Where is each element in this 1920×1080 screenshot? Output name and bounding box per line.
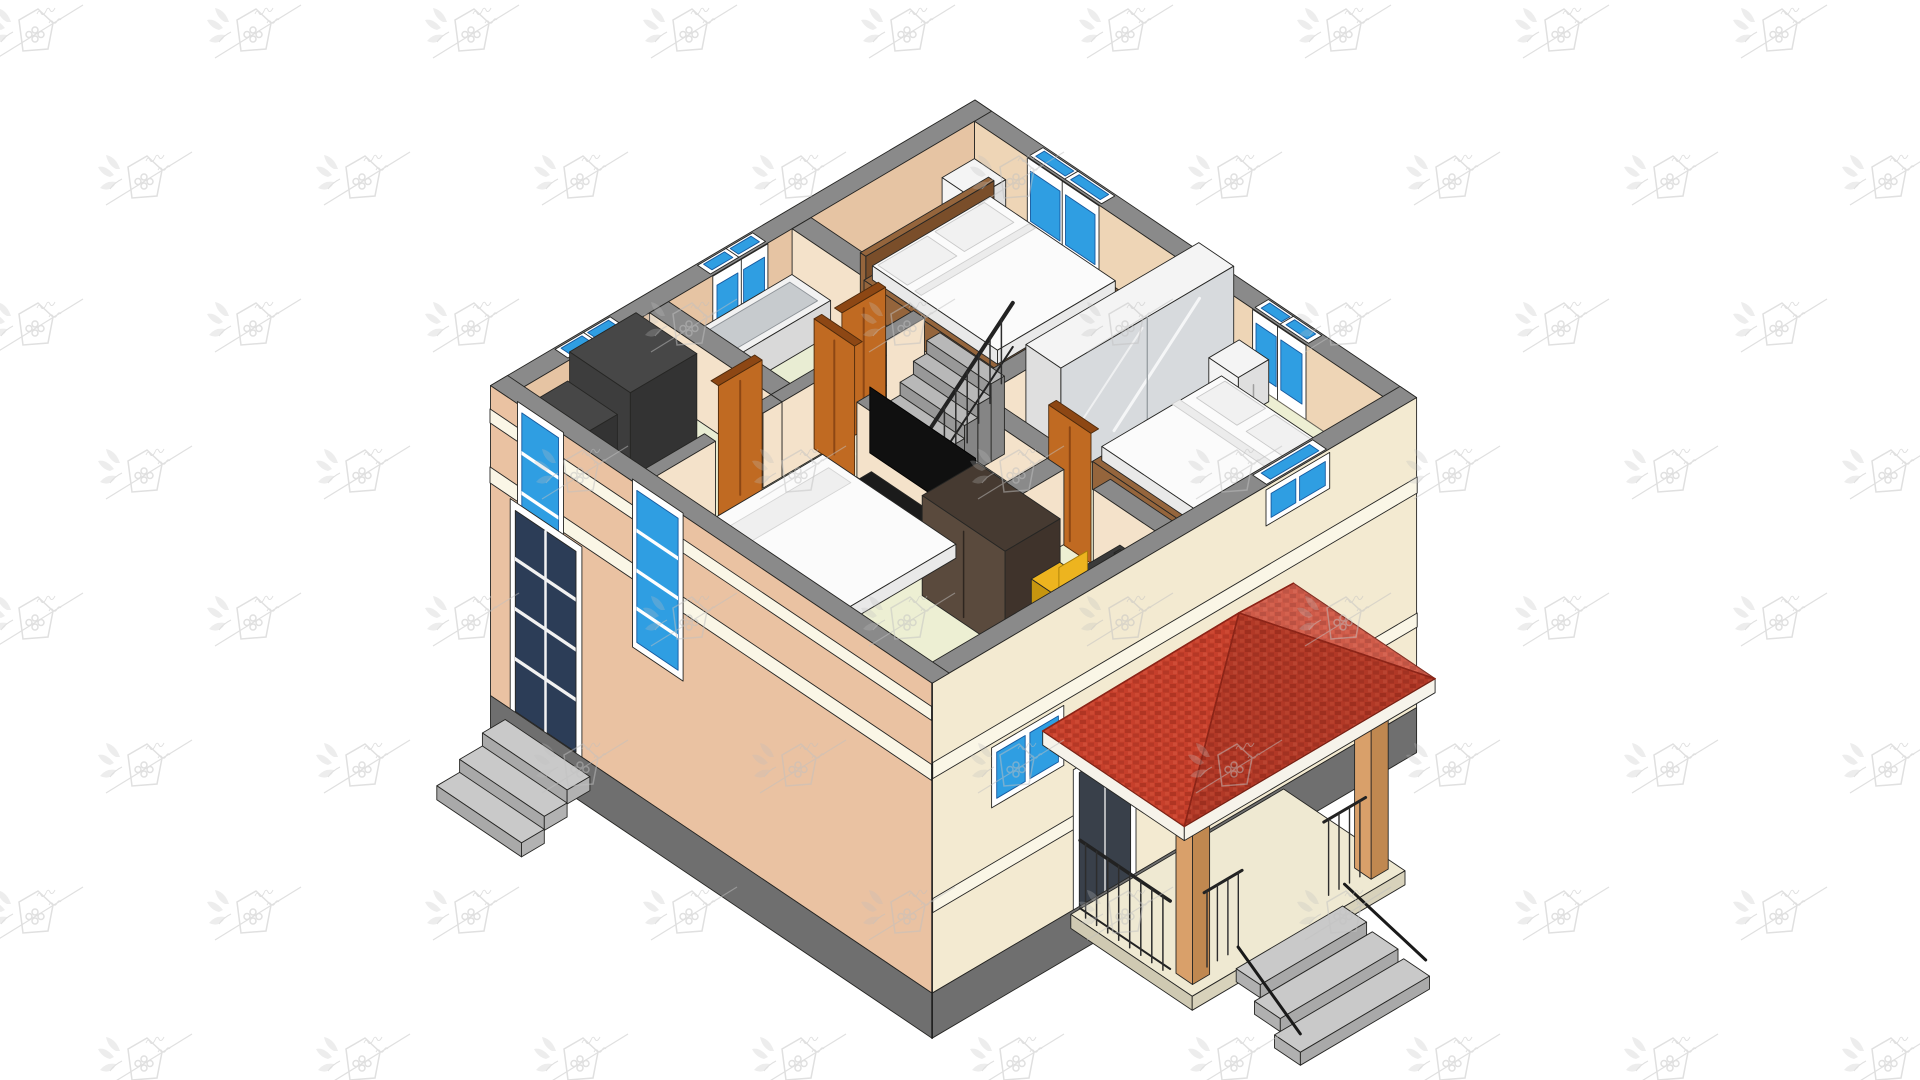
watermark-tile	[98, 740, 192, 793]
watermark-tile	[534, 1034, 628, 1080]
watermark-tile	[425, 299, 519, 352]
watermark-tile	[207, 593, 301, 646]
watermark-tile	[1624, 446, 1718, 499]
watermark-tile	[98, 446, 192, 499]
watermark-tile	[1624, 740, 1718, 793]
floorplan-3d-render-canvas	[0, 0, 1920, 1080]
watermark-tile	[1842, 1034, 1920, 1080]
watermark-tile	[643, 5, 737, 58]
watermark-tile	[1842, 152, 1920, 205]
watermark-tile	[1515, 299, 1609, 352]
watermark-tile	[534, 152, 628, 205]
watermark-tile	[316, 1034, 410, 1080]
watermark-tile	[1188, 152, 1282, 205]
watermark-tile	[1188, 1034, 1282, 1080]
watermark-tile	[1842, 446, 1920, 499]
watermark-tile	[98, 152, 192, 205]
watermark-tile	[207, 887, 301, 940]
watermark-tile	[0, 593, 83, 646]
watermark-tile	[1406, 446, 1500, 499]
watermark-tile	[1406, 740, 1500, 793]
watermark-tile	[207, 299, 301, 352]
watermark-tile	[1733, 593, 1827, 646]
house-cutaway-render	[437, 100, 1435, 1065]
watermark-tile	[316, 446, 410, 499]
watermark-tile	[1515, 593, 1609, 646]
watermark-tile	[752, 1034, 846, 1080]
watermark-tile	[1515, 887, 1609, 940]
watermark-tile	[1624, 1034, 1718, 1080]
window-glass	[637, 490, 678, 670]
watermark-tile	[98, 1034, 192, 1080]
watermark-tile	[1733, 5, 1827, 58]
watermark-tile	[1079, 5, 1173, 58]
floorplan-3d-render	[0, 0, 1920, 1080]
watermark-tile	[0, 299, 83, 352]
watermark-tile	[1406, 1034, 1500, 1080]
watermark-tile	[0, 5, 83, 58]
watermark-tile	[1733, 299, 1827, 352]
watermark-tile	[316, 740, 410, 793]
watermark-tile	[1515, 5, 1609, 58]
watermark-tile	[425, 887, 519, 940]
watermark-tile	[0, 887, 83, 940]
watermark-tile	[1733, 887, 1827, 940]
watermark-tile	[1842, 740, 1920, 793]
watermark-tile	[1624, 152, 1718, 205]
watermark-tile	[1297, 5, 1391, 58]
watermark-tile	[316, 152, 410, 205]
watermark-tile	[425, 5, 519, 58]
watermark-tile	[207, 5, 301, 58]
watermark-tile	[970, 1034, 1064, 1080]
watermark-tile	[1406, 152, 1500, 205]
stair-side	[991, 376, 1004, 462]
watermark-tile	[861, 5, 955, 58]
